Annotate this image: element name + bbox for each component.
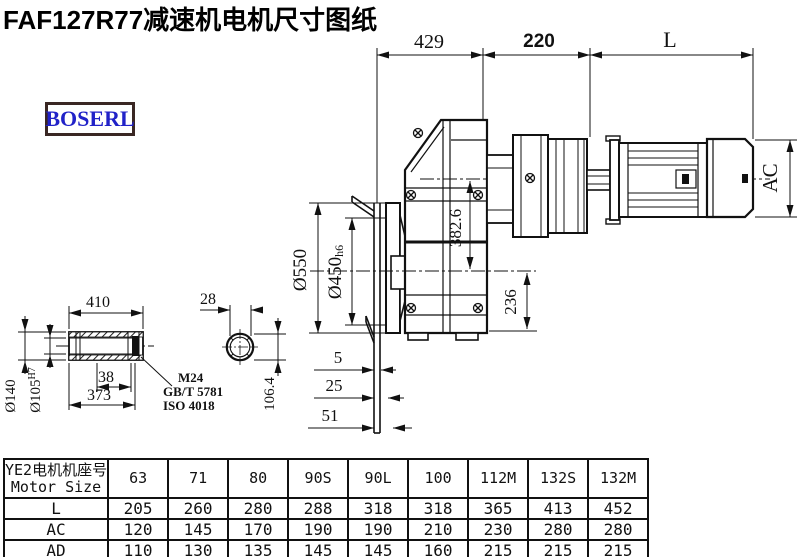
cell: 280: [228, 498, 288, 519]
cell: 413: [528, 498, 588, 519]
cell: 170: [228, 519, 288, 540]
cell: 120: [108, 519, 168, 540]
dim-L: L: [663, 27, 676, 52]
cell: 452: [588, 498, 648, 519]
motor-size-table: YE2电机机座号 Motor Size 63 71 80 90S 90L 100…: [3, 458, 649, 557]
col-90S: 90S: [288, 459, 348, 498]
dim-450h6: Ø450h6: [325, 245, 346, 299]
cell: 288: [288, 498, 348, 519]
dim-550: Ø550: [290, 249, 311, 291]
cell: 318: [408, 498, 468, 519]
dim-429: 429: [414, 31, 444, 53]
header-motor-size: YE2电机机座号 Motor Size: [4, 459, 108, 498]
table-header-row: YE2电机机座号 Motor Size 63 71 80 90S 90L 100…: [4, 459, 648, 498]
cell: 260: [168, 498, 228, 519]
cell: 280: [588, 519, 648, 540]
row-label-L: L: [4, 498, 108, 519]
col-112M: 112M: [468, 459, 528, 498]
dim-25: 25: [326, 376, 343, 395]
table-row-AC: AC 120 145 170 190 190 210 230 280 280: [4, 519, 648, 540]
dim-AC: AC: [758, 163, 782, 192]
col-132M: 132M: [588, 459, 648, 498]
cell: 230: [468, 519, 528, 540]
dim-5: 5: [334, 348, 343, 367]
dim-450: Ø450: [325, 257, 346, 299]
dim-382-6: 382.6: [446, 209, 465, 247]
cell: 145: [168, 519, 228, 540]
cell: 190: [288, 519, 348, 540]
shaft-end-dims: [200, 305, 286, 376]
label-iso-standard: ISO 4018: [163, 398, 215, 413]
cell: 365: [468, 498, 528, 519]
col-71: 71: [168, 459, 228, 498]
dim-450-tol: h6: [332, 245, 346, 257]
dim-220: 220: [523, 31, 555, 52]
dim-106-4: 106.4: [262, 377, 278, 411]
dim-140: Ø140: [3, 379, 19, 412]
dim-51: 51: [322, 406, 339, 425]
cell: 145: [348, 540, 408, 557]
cell: 280: [528, 519, 588, 540]
dim-105-tol: H7: [27, 367, 38, 379]
cell: 205: [108, 498, 168, 519]
technical-drawing: 429 220 L: [0, 0, 800, 457]
shaft-detail: [56, 332, 154, 360]
motor: [606, 136, 753, 224]
cell: 110: [108, 540, 168, 557]
shaft-end-detail: [222, 329, 258, 365]
dim-28: 28: [200, 291, 216, 308]
dim-38: 38: [98, 369, 114, 386]
cell: 135: [228, 540, 288, 557]
row-label-AC: AC: [4, 519, 108, 540]
cell: 145: [288, 540, 348, 557]
dim-410: 410: [86, 294, 110, 311]
cell: 130: [168, 540, 228, 557]
dim-373: 373: [87, 387, 111, 404]
cell: 215: [528, 540, 588, 557]
col-80: 80: [228, 459, 288, 498]
dim-105H7: Ø105H7: [27, 367, 44, 413]
input-adapter: [487, 135, 610, 237]
table-row-AD: AD 110 130 135 145 145 160 215 215 215: [4, 540, 648, 557]
cell: 190: [348, 519, 408, 540]
col-90L: 90L: [348, 459, 408, 498]
cell: 215: [468, 540, 528, 557]
label-gb-standard: GB/T 5781: [163, 384, 223, 399]
row-label-AD: AD: [4, 540, 108, 557]
header-motor-size-en: Motor Size: [5, 479, 107, 496]
dim-105: Ø105: [28, 379, 44, 412]
header-motor-size-cn: YE2电机机座号: [5, 462, 107, 479]
cell: 160: [408, 540, 468, 557]
dim-236: 236: [501, 289, 520, 315]
col-132S: 132S: [528, 459, 588, 498]
col-63: 63: [108, 459, 168, 498]
cell: 318: [348, 498, 408, 519]
cell: 210: [408, 519, 468, 540]
col-100: 100: [408, 459, 468, 498]
adapter-bolt: [526, 174, 535, 183]
mounting-wall: [352, 196, 380, 433]
drawing-sheet: FAF127R77减速机电机尺寸图纸 BOSERL: [0, 0, 800, 557]
label-thread: M24: [178, 370, 204, 385]
table-row-L: L 205 260 280 288 318 318 365 413 452: [4, 498, 648, 519]
cell: 215: [588, 540, 648, 557]
